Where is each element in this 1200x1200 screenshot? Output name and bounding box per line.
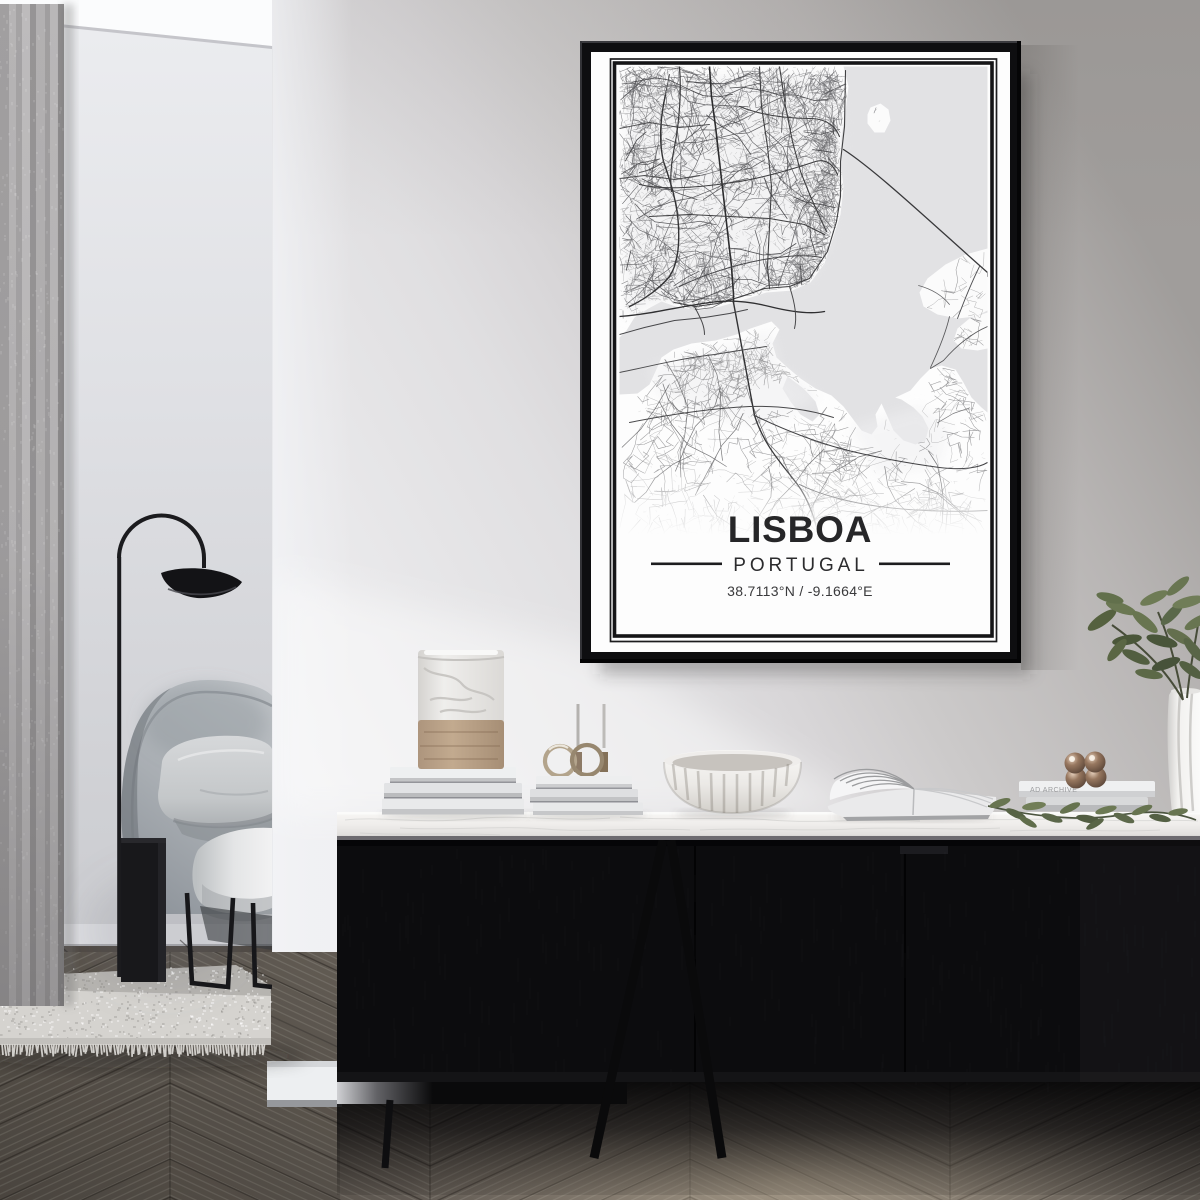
svg-text:38.7113°N / -9.1664°E: 38.7113°N / -9.1664°E: [727, 583, 873, 599]
svg-text:AD ARCHIVE: AD ARCHIVE: [1030, 787, 1077, 794]
svg-text:PORTUGAL: PORTUGAL: [733, 555, 868, 576]
svg-text:LISBOA: LISBOA: [728, 509, 873, 550]
